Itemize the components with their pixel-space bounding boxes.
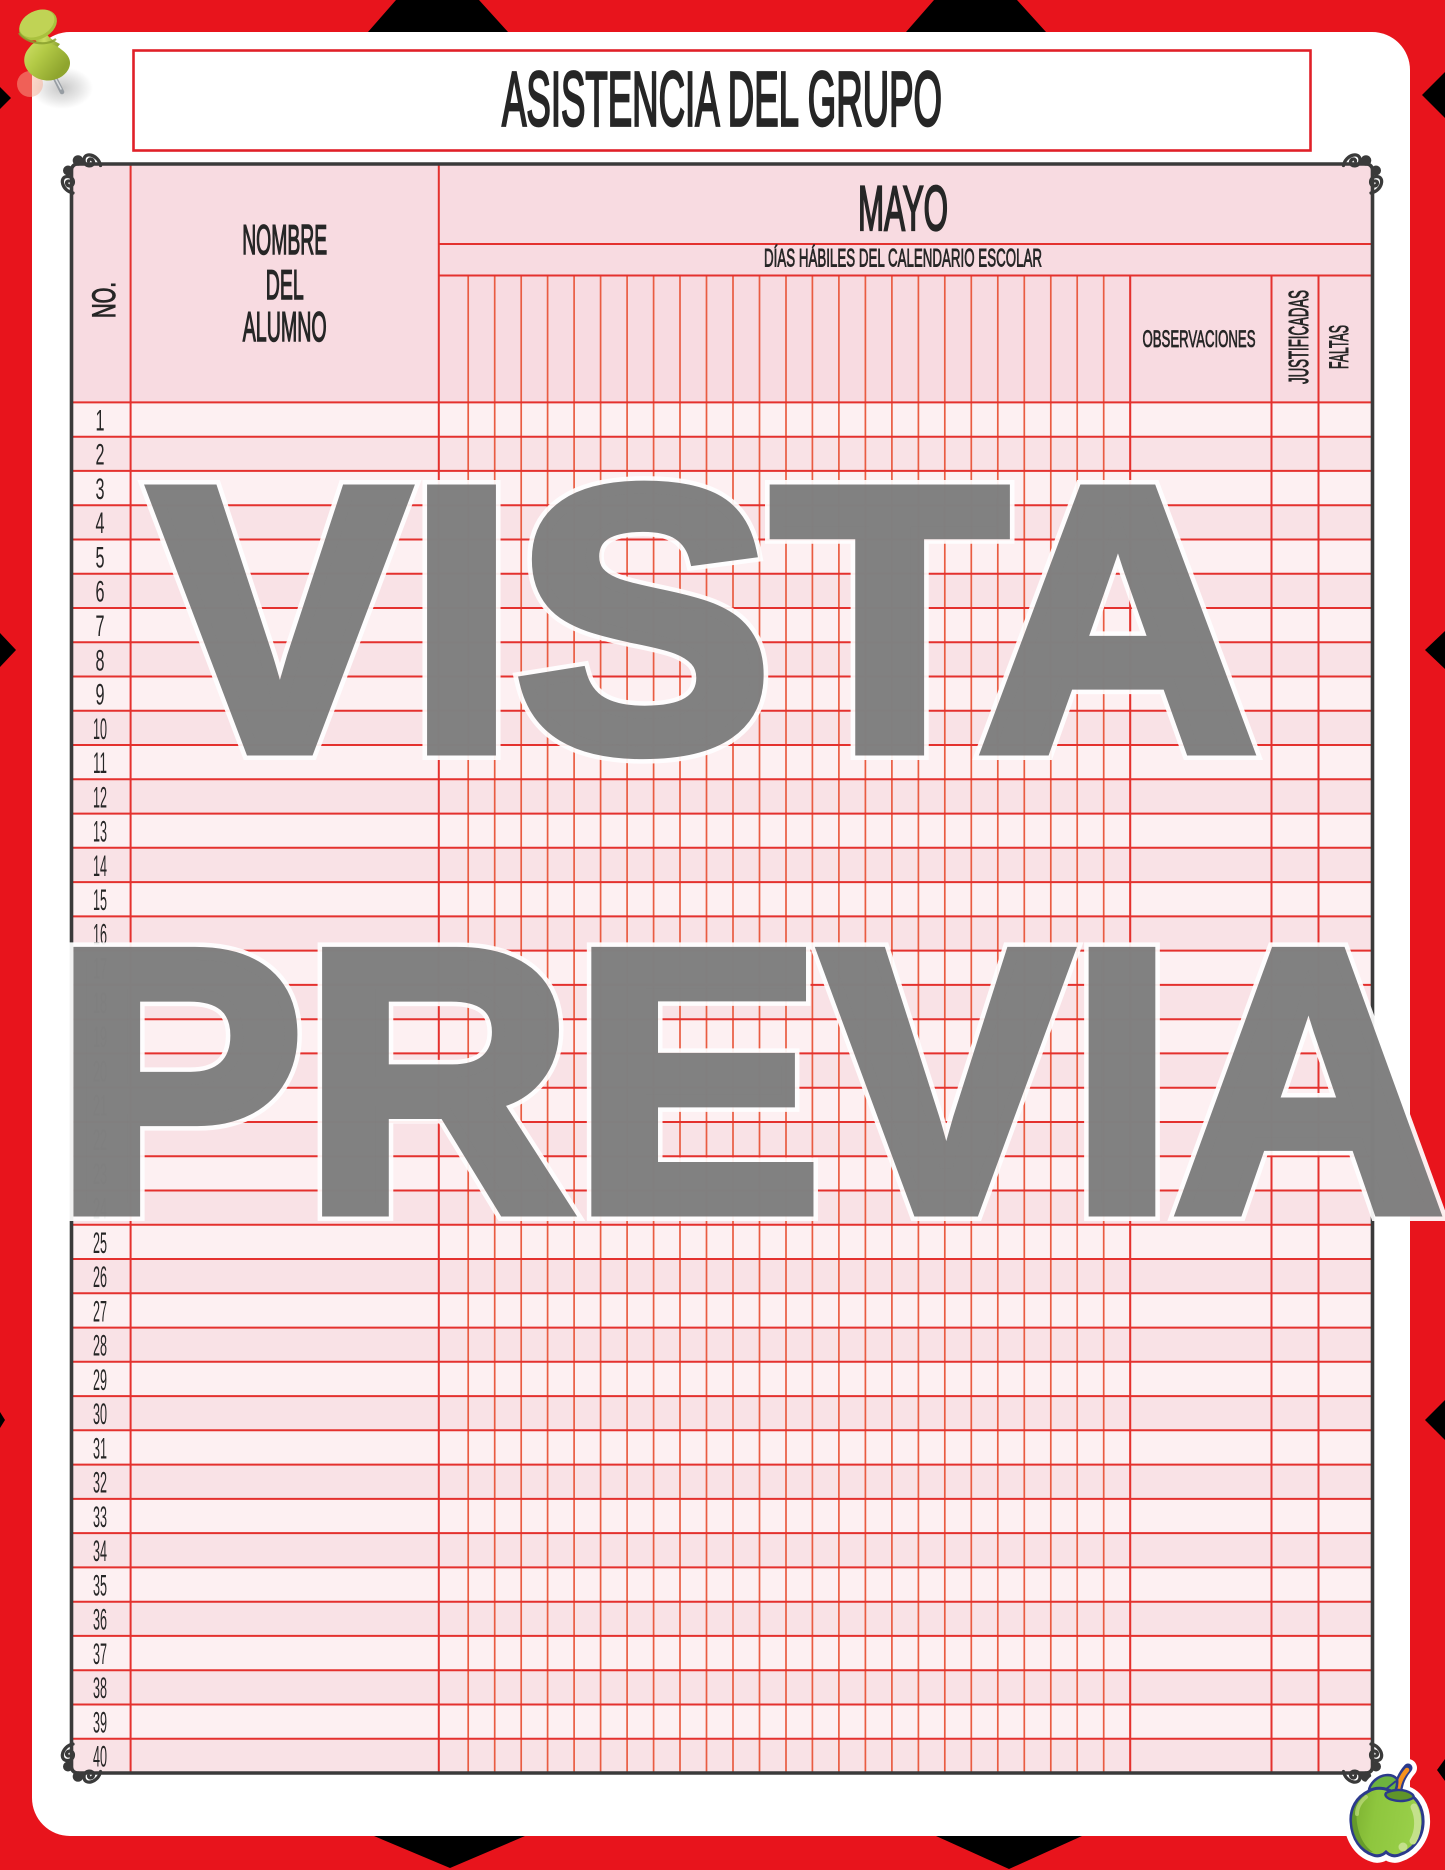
svg-text:8: 8 xyxy=(96,644,105,677)
svg-text:OBSERVACIONES: OBSERVACIONES xyxy=(1143,326,1256,353)
svg-text:6: 6 xyxy=(96,575,105,608)
svg-text:3: 3 xyxy=(96,472,105,505)
svg-text:VISTA: VISTA xyxy=(151,411,1257,829)
svg-text:NO.: NO. xyxy=(87,282,122,318)
svg-text:9: 9 xyxy=(96,678,105,711)
svg-text:10: 10 xyxy=(93,712,107,745)
svg-text:30: 30 xyxy=(93,1398,107,1431)
svg-text:7: 7 xyxy=(96,610,105,643)
svg-text:13: 13 xyxy=(93,815,107,848)
svg-text:ALUMNO: ALUMNO xyxy=(243,305,327,351)
svg-text:12: 12 xyxy=(93,781,107,814)
svg-text:39: 39 xyxy=(93,1706,107,1739)
svg-text:29: 29 xyxy=(93,1363,107,1396)
svg-text:28: 28 xyxy=(93,1329,107,1362)
svg-text:40: 40 xyxy=(93,1740,107,1773)
svg-text:37: 37 xyxy=(93,1637,107,1670)
svg-text:4: 4 xyxy=(96,507,105,540)
svg-text:JUSTIFICADAS: JUSTIFICADAS xyxy=(1283,290,1314,384)
svg-text:2: 2 xyxy=(96,438,105,471)
svg-text:36: 36 xyxy=(93,1603,107,1636)
svg-text:5: 5 xyxy=(96,541,105,574)
svg-text:FALTAS: FALTAS xyxy=(1323,325,1354,369)
svg-text:MAYO: MAYO xyxy=(858,173,948,244)
svg-text:11: 11 xyxy=(93,747,107,780)
svg-text:ASISTENCIA DEL GRUPO: ASISTENCIA DEL GRUPO xyxy=(502,57,942,142)
svg-text:NOMBRE: NOMBRE xyxy=(242,218,327,264)
svg-text:32: 32 xyxy=(93,1466,107,1499)
svg-text:31: 31 xyxy=(93,1432,107,1465)
svg-text:DEL: DEL xyxy=(266,263,304,309)
svg-text:34: 34 xyxy=(93,1535,107,1568)
svg-text:1: 1 xyxy=(96,404,105,437)
svg-text:38: 38 xyxy=(93,1672,107,1705)
svg-text:PREVIA: PREVIA xyxy=(55,873,1443,1290)
svg-text:33: 33 xyxy=(93,1500,107,1533)
svg-text:DÍAS HÁBILES DEL CALENDARIO ES: DÍAS HÁBILES DEL CALENDARIO ESCOLAR xyxy=(764,245,1042,273)
svg-text:27: 27 xyxy=(93,1295,107,1328)
svg-text:35: 35 xyxy=(93,1569,107,1602)
